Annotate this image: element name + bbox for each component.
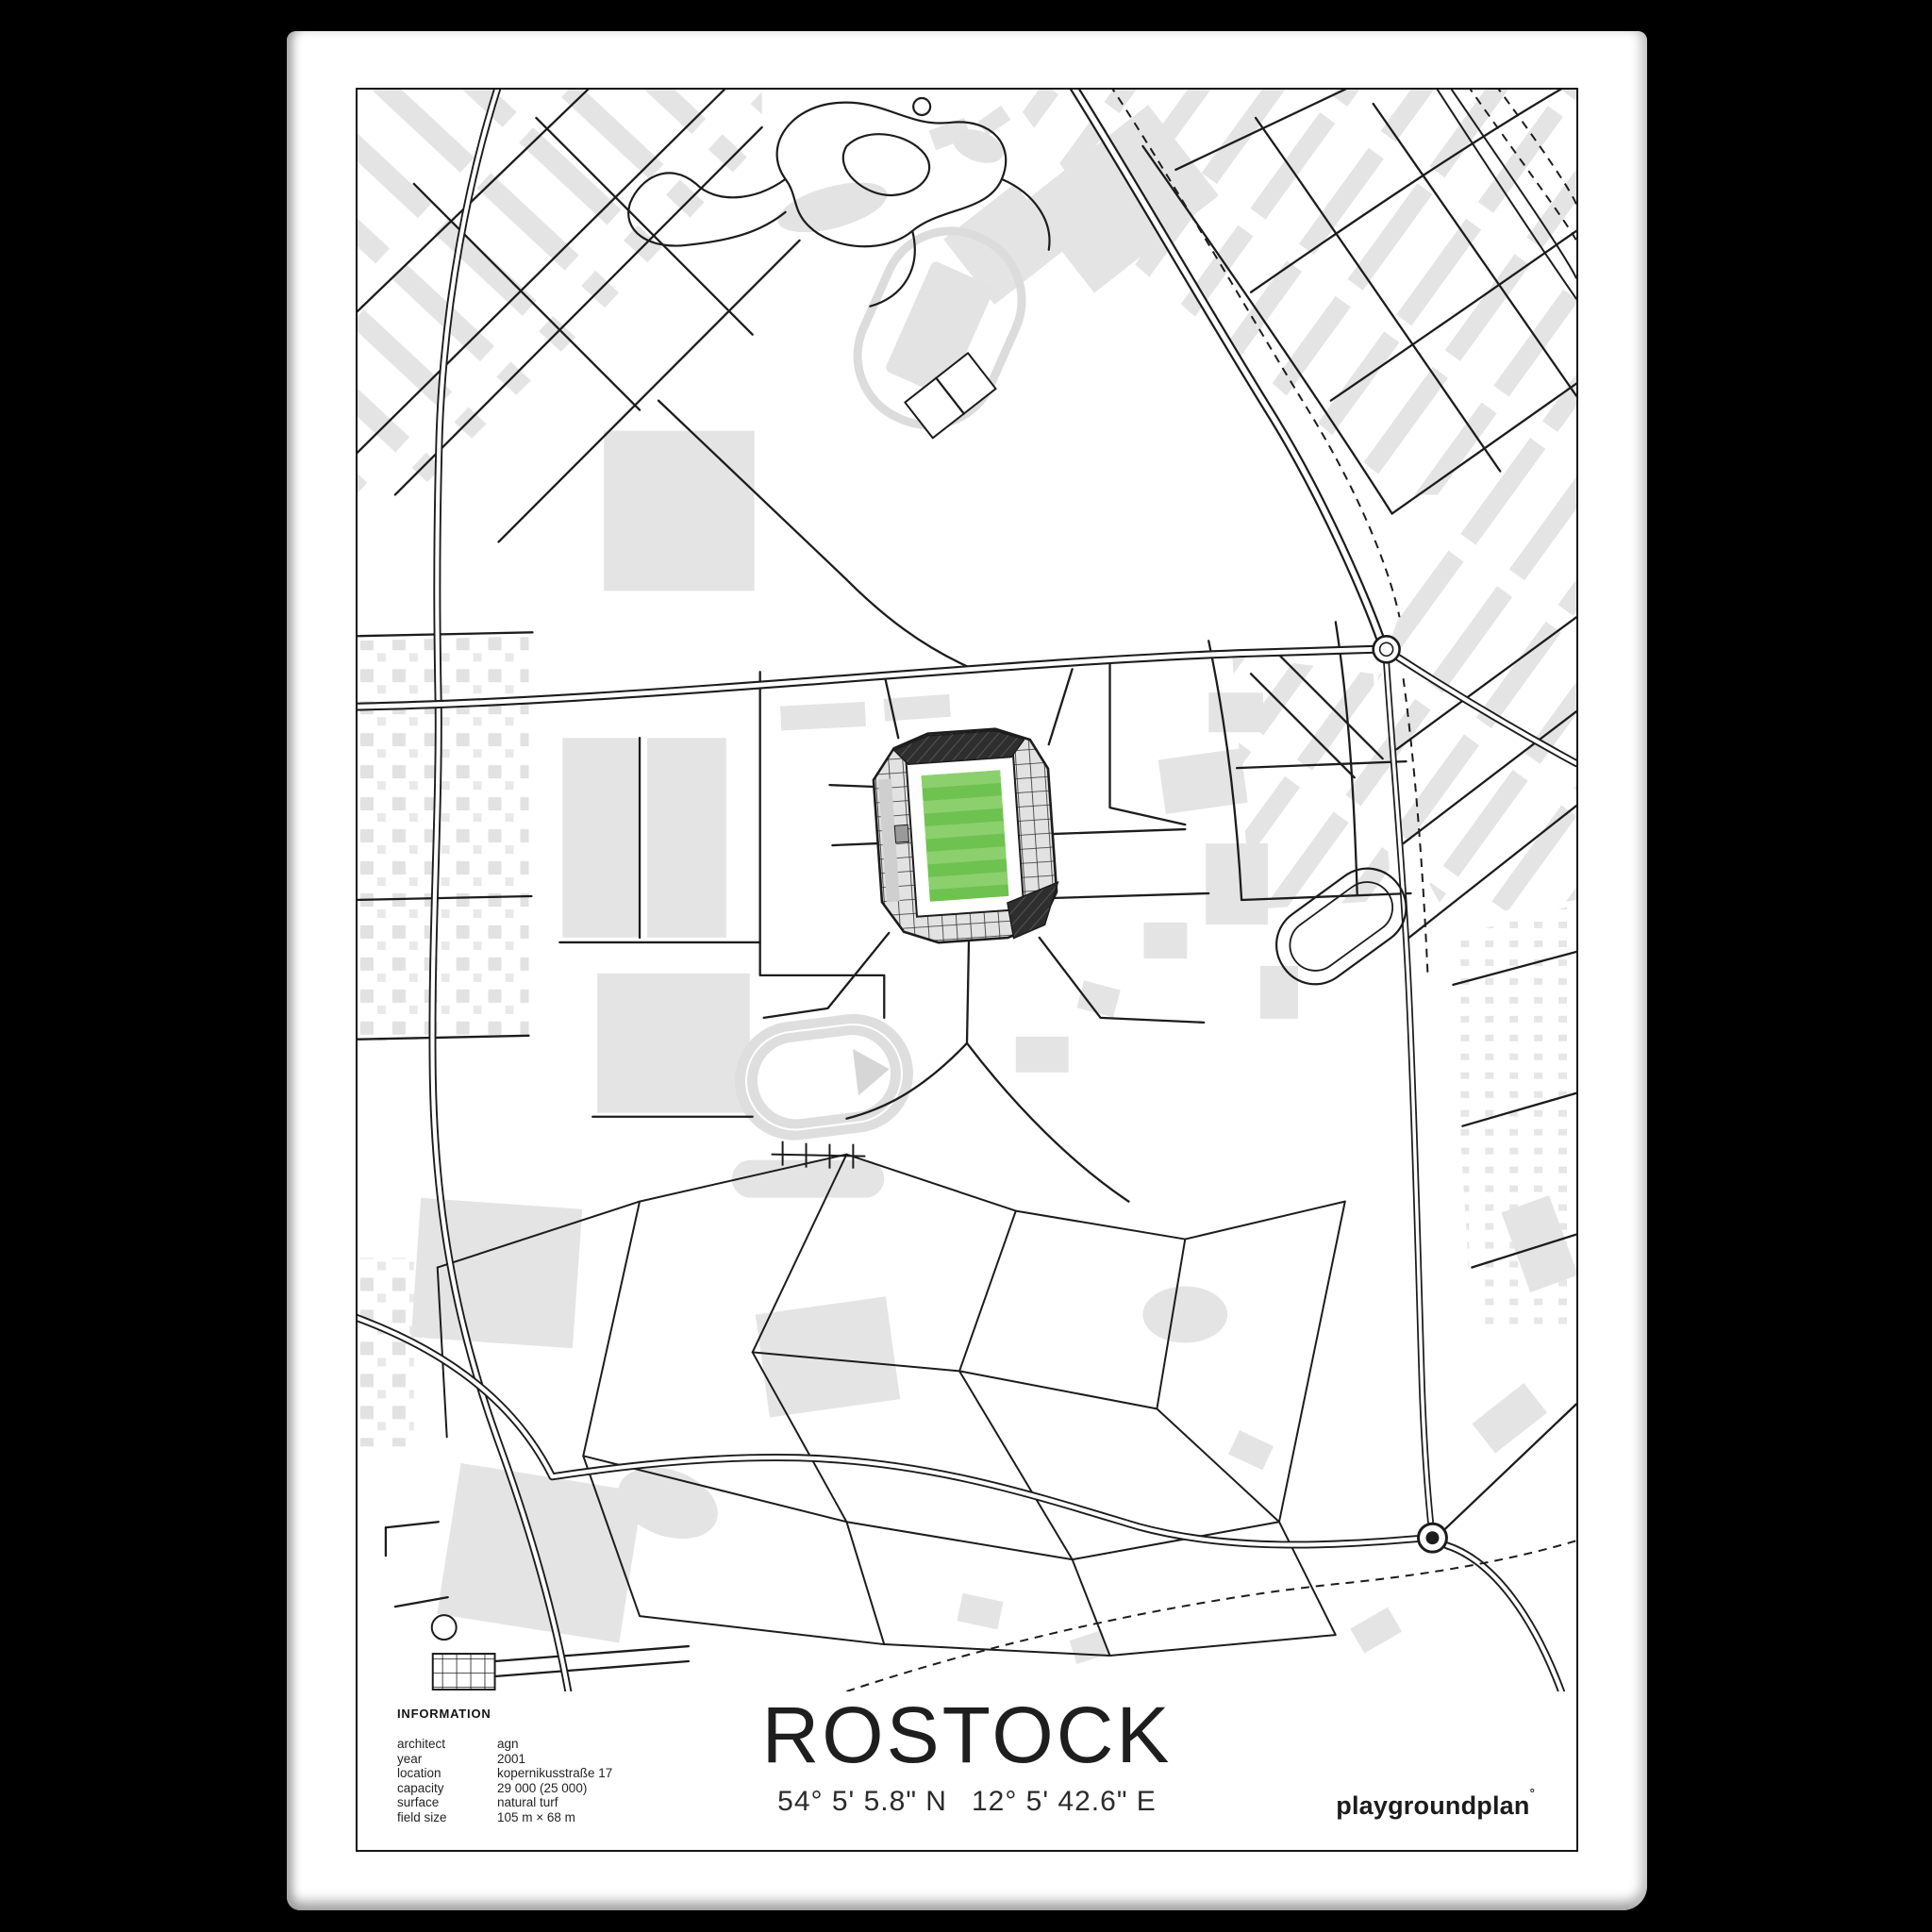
city-map (358, 90, 1576, 1691)
roundabout-bottom (1419, 1524, 1447, 1552)
pier-structure (432, 1615, 495, 1690)
poster-title: ROSTOCK (358, 1695, 1576, 1774)
brand-degree-mark: ° (1530, 1786, 1535, 1800)
coordinate-lon: 12° 5' 42.6" E (972, 1786, 1157, 1817)
stadium (871, 725, 1061, 947)
screenshot-root: { "poster": { "title": "ROSTOCK", "coord… (0, 0, 1932, 1932)
caption: INFORMATION architect agn year 2001 loca… (358, 1691, 1576, 1850)
brand-logo: playgroundplan° (1336, 1786, 1535, 1821)
brand-name: playgroundplan (1336, 1791, 1529, 1820)
poster: INFORMATION architect agn year 2001 loca… (287, 31, 1647, 1910)
poster-frame: INFORMATION architect agn year 2001 loca… (356, 88, 1578, 1852)
athletics-track (728, 1008, 920, 1147)
stadium-west-box (894, 824, 908, 842)
map-area (358, 90, 1576, 1691)
coordinate-lat: 54° 5' 5.8" N (777, 1786, 947, 1817)
roundabout-top (1374, 636, 1400, 662)
stadium-pitch (922, 770, 1009, 901)
